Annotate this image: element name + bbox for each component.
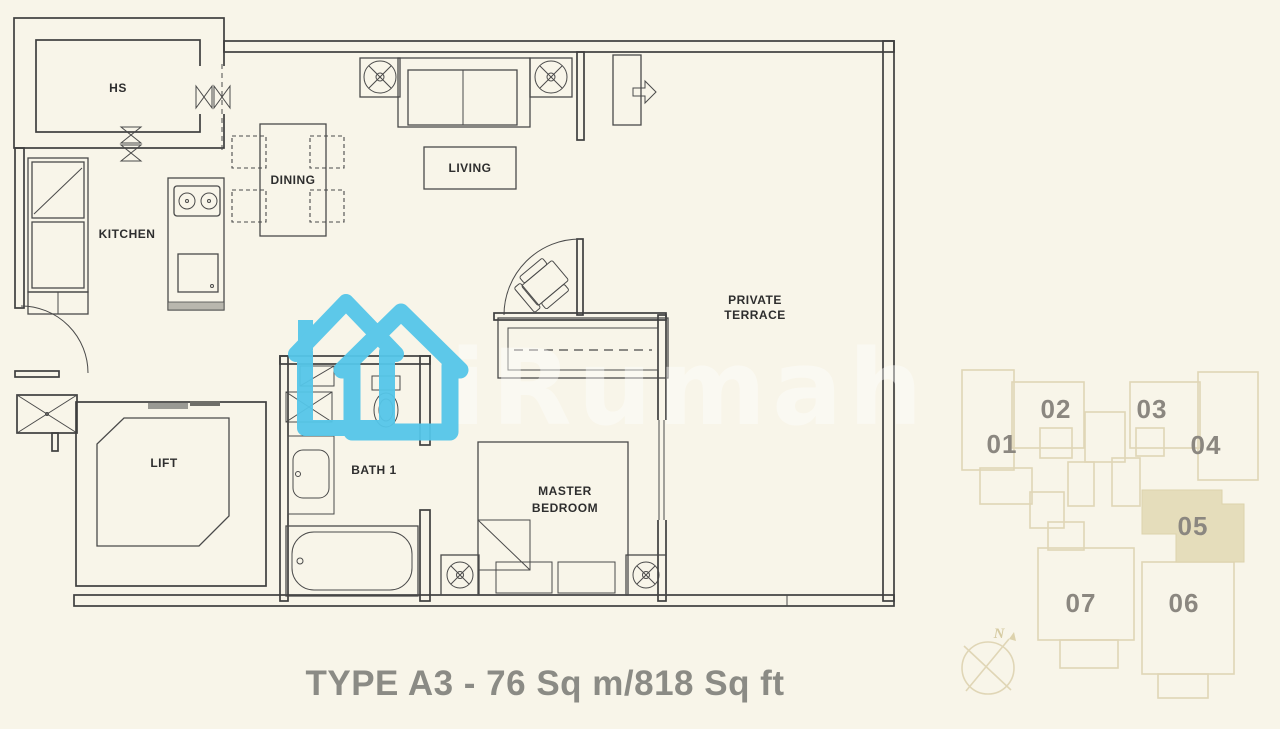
brand-house-icon [296, 302, 460, 432]
unit-number-highlighted: 05 [1178, 511, 1209, 541]
hs-label: HS [109, 81, 127, 95]
watermark-text: iRumah [450, 327, 928, 449]
sink-icon [178, 254, 218, 292]
unit-number: 01 [987, 429, 1018, 459]
unit-number: 07 [1066, 588, 1097, 618]
page-title: TYPE A3 - 76 Sq m/818 Sq ft [205, 664, 885, 704]
private-terrace-label: PRIVATE [728, 293, 782, 307]
compass-north-label: N [993, 626, 1006, 642]
ceiling-fan-icon [535, 61, 567, 93]
key-plan: 01 02 03 04 05 06 07 N [962, 370, 1258, 698]
floor-plan-page: HS KITCHEN DINING LIVING PRIVATE TERRACE… [0, 0, 1280, 729]
private-terrace-label: TERRACE [724, 308, 786, 322]
unit-number: 02 [1041, 394, 1072, 424]
floor-plan-drawing: HS KITCHEN DINING LIVING PRIVATE TERRACE… [0, 0, 1280, 729]
lift-label: LIFT [150, 456, 177, 470]
dining-label: DINING [271, 173, 316, 187]
armchair [511, 254, 574, 316]
bathtub-icon [286, 526, 418, 596]
living-label: LIVING [448, 161, 491, 175]
living-furniture [360, 58, 574, 316]
master-bedroom-label: MASTER [538, 484, 592, 498]
sofa [398, 58, 530, 127]
watermark: iRumah [296, 302, 928, 449]
drain-arrow-icon [633, 81, 656, 103]
pillow [496, 562, 552, 593]
master-bedroom-label: BEDROOM [532, 501, 598, 515]
fridge [28, 158, 88, 292]
lift-door [148, 403, 188, 409]
lift [76, 401, 266, 586]
bath1-label: BATH 1 [351, 463, 396, 477]
terrace-fittings [613, 55, 656, 125]
pillow [558, 562, 615, 593]
ceiling-fan-icon [633, 562, 659, 588]
planter [613, 55, 641, 125]
unit-number: 06 [1169, 588, 1200, 618]
hob-icon [174, 186, 220, 216]
kitchen-label: KITCHEN [99, 227, 156, 241]
ceiling-fan-icon [364, 61, 396, 93]
room-labels: HS KITCHEN DINING LIVING PRIVATE TERRACE… [99, 81, 786, 515]
kitchen-counter [168, 178, 224, 310]
unit-number: 03 [1137, 394, 1168, 424]
compass-icon: N [962, 626, 1016, 694]
basin-icon [288, 436, 334, 514]
unit-number: 04 [1191, 430, 1222, 460]
bed [478, 442, 628, 595]
ceiling-fan-icon [447, 562, 473, 588]
entrance-door-arc [21, 306, 88, 373]
ac-ledge-box [17, 395, 77, 433]
